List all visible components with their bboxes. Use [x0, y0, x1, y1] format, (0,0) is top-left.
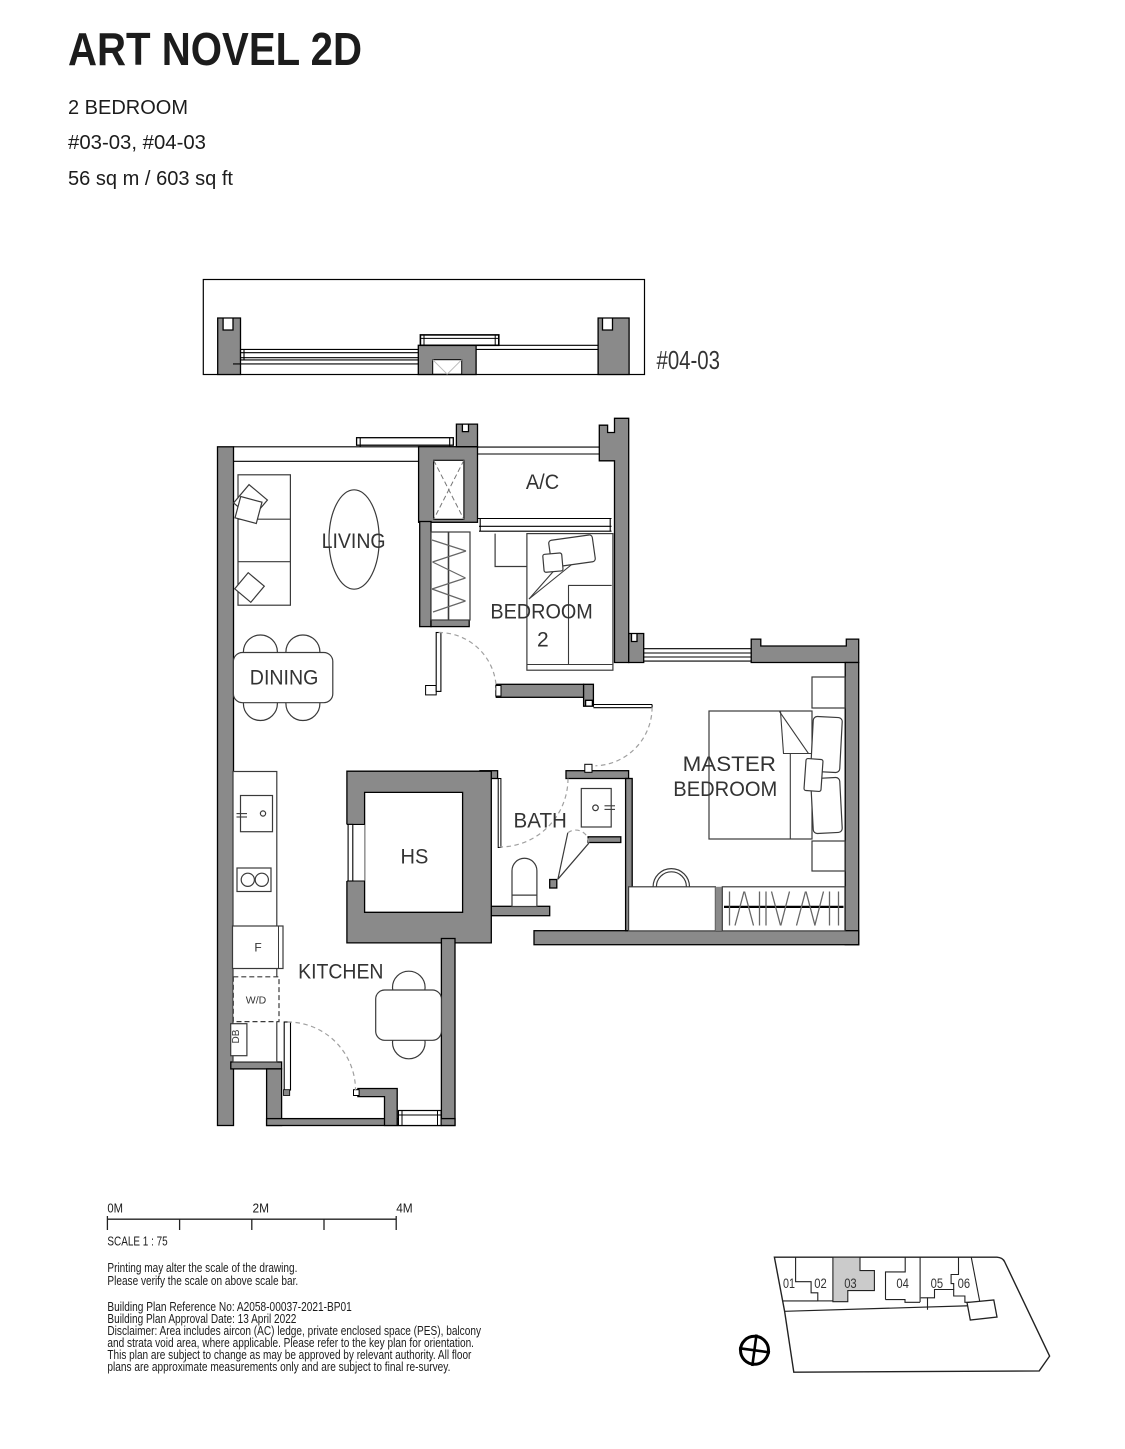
svg-text:DB: DB	[231, 1029, 242, 1043]
svg-text:2: 2	[537, 629, 549, 652]
svg-text:LIVING: LIVING	[322, 530, 386, 553]
svg-text:01: 01	[783, 1276, 795, 1291]
svg-text:F: F	[254, 941, 261, 955]
svg-text:0M: 0M	[107, 1201, 123, 1216]
svg-text:05: 05	[931, 1276, 944, 1291]
svg-text:A/C: A/C	[526, 471, 559, 494]
svg-text:2M: 2M	[253, 1201, 270, 1216]
svg-text:2 BEDROOM: 2 BEDROOM	[68, 97, 188, 119]
svg-text:03: 03	[844, 1276, 857, 1291]
svg-text:56 sq m / 603 sq ft: 56 sq m / 603 sq ft	[68, 168, 233, 190]
svg-text:SCALE 1 : 75: SCALE 1 : 75	[107, 1235, 167, 1249]
svg-text:plans are approximate measurem: plans are approximate measurements only …	[107, 1360, 450, 1374]
svg-text:4M: 4M	[396, 1201, 413, 1216]
svg-text:W/D: W/D	[246, 995, 267, 1007]
svg-text:#03-03, #04-03: #03-03, #04-03	[68, 132, 206, 154]
svg-text:02: 02	[814, 1276, 827, 1291]
svg-text:DINING: DINING	[250, 666, 319, 689]
svg-text:Printing may alter the scale o: Printing may alter the scale of the draw…	[107, 1261, 297, 1275]
svg-text:04: 04	[896, 1276, 909, 1291]
svg-text:HS: HS	[401, 846, 429, 869]
svg-text:06: 06	[958, 1276, 971, 1291]
svg-text:KITCHEN: KITCHEN	[298, 961, 383, 984]
svg-text:BEDROOM: BEDROOM	[673, 778, 777, 801]
svg-text:Please verify the scale on abo: Please verify the scale on above scale b…	[107, 1274, 298, 1288]
svg-text:ART NOVEL 2D: ART NOVEL 2D	[68, 23, 362, 75]
svg-text:MASTER: MASTER	[683, 753, 776, 776]
svg-text:#04-03: #04-03	[657, 345, 721, 375]
svg-text:BEDROOM: BEDROOM	[490, 600, 593, 623]
svg-text:BATH: BATH	[514, 810, 567, 833]
